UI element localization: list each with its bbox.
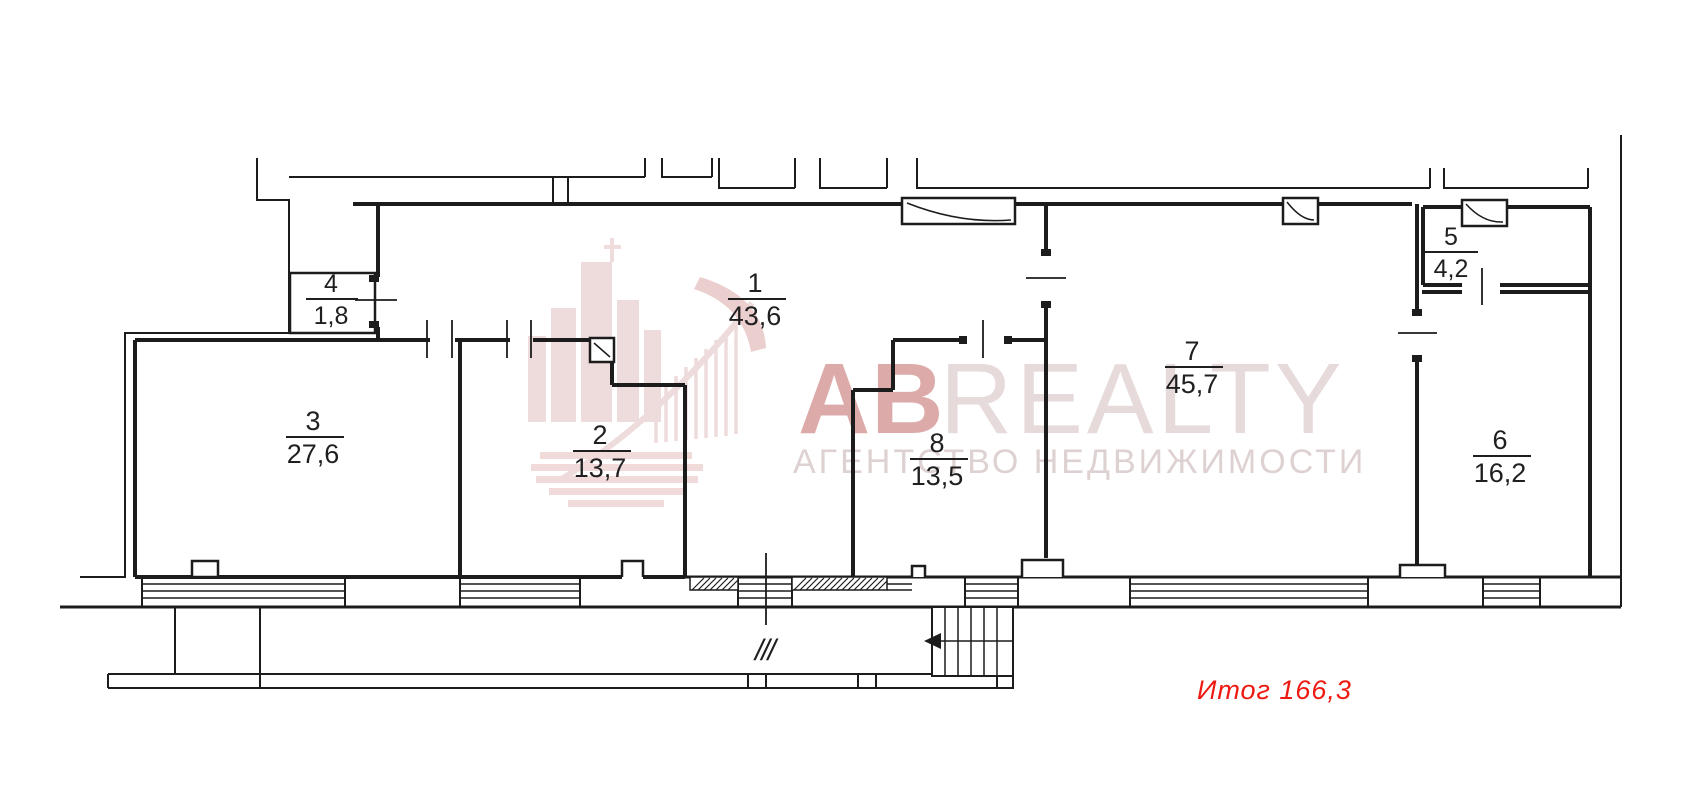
room-1-label: 1 43,6 bbox=[728, 268, 786, 331]
stairs bbox=[924, 607, 1013, 676]
room-2-area: 13,7 bbox=[574, 453, 627, 483]
room-8-area: 13,5 bbox=[911, 461, 964, 491]
watermark-tagline: АГЕНТСТВО НЕДВИЖИМОСТИ bbox=[793, 443, 1366, 481]
room-3-number: 3 bbox=[305, 406, 320, 436]
room-5-label: 5 4,2 bbox=[1425, 223, 1478, 283]
porch bbox=[108, 607, 1013, 688]
floor-plan-svg: AB REALTY АГЕНТСТВО НЕДВИЖИМОСТИ bbox=[0, 0, 1708, 800]
room-5-number: 5 bbox=[1444, 223, 1458, 251]
room-3-area: 27,6 bbox=[287, 439, 340, 469]
room-1-area: 43,6 bbox=[729, 301, 782, 331]
room-8-number: 8 bbox=[929, 428, 944, 458]
column-room-3 bbox=[192, 561, 218, 577]
walls-thick bbox=[135, 204, 1590, 577]
room-6-label: 6 16,2 bbox=[1473, 425, 1531, 488]
floor-plan-page: AB REALTY АГЕНТСТВО НЕДВИЖИМОСТИ bbox=[0, 0, 1708, 800]
watermark-antenna-icon bbox=[604, 238, 621, 262]
room-3-label: 3 27,6 bbox=[286, 406, 344, 469]
wall-pedestals bbox=[622, 560, 1445, 577]
room-1-number: 1 bbox=[747, 268, 762, 298]
window-symbol-room1-icon bbox=[902, 198, 1015, 224]
room-5-area: 4,2 bbox=[1434, 255, 1469, 283]
room-6-area: 16,2 bbox=[1474, 458, 1527, 488]
window-symbol-room5-icon bbox=[1462, 200, 1507, 226]
room-4-number: 4 bbox=[324, 270, 338, 298]
window-symbol-room2-icon bbox=[590, 338, 614, 362]
watermark-brand-bold: AB bbox=[798, 343, 944, 455]
total-area-label: Итог 166,3 bbox=[1197, 675, 1352, 705]
watermark-emblem bbox=[528, 238, 766, 507]
room-7-number: 7 bbox=[1184, 336, 1199, 366]
room-4-area: 1,8 bbox=[314, 302, 349, 330]
room-6-number: 6 bbox=[1492, 425, 1507, 455]
room-2-number: 2 bbox=[592, 420, 607, 450]
watermark-brand-light: REALTY bbox=[940, 343, 1346, 455]
window-symbol-room7-icon bbox=[1283, 198, 1318, 224]
room-2-label: 2 13,7 bbox=[573, 420, 631, 483]
room-7-area: 45,7 bbox=[1166, 369, 1219, 399]
entrance-mark: /// bbox=[753, 634, 779, 667]
